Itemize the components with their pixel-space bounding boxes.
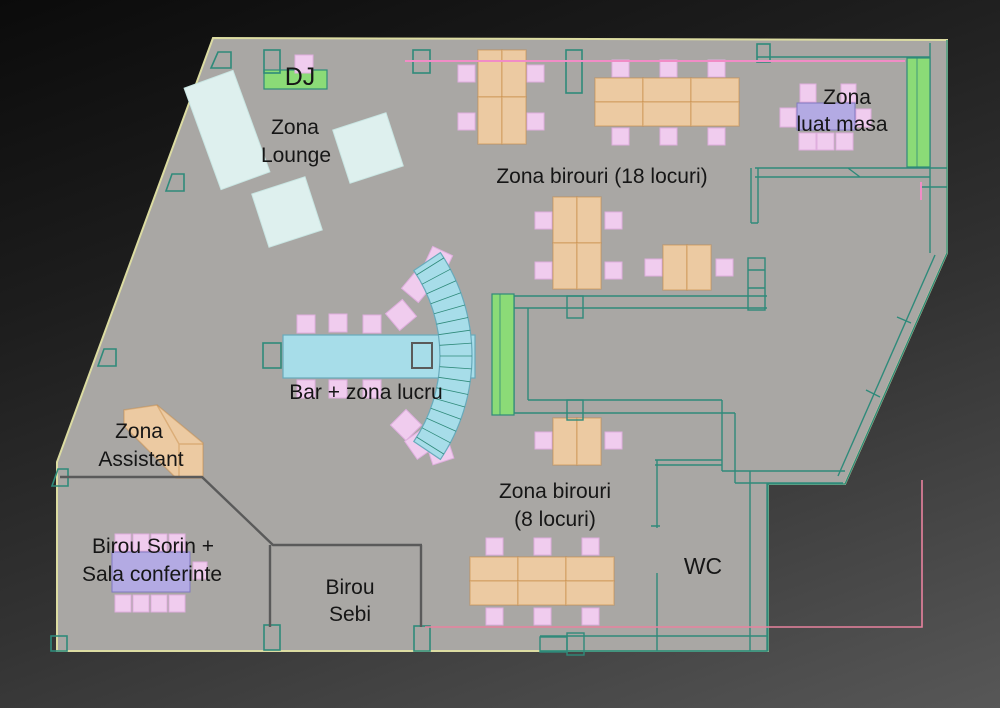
label-sorin-2: Sala conferinte <box>82 563 222 586</box>
label-lounge-2: Lounge <box>261 144 331 167</box>
viewport-background[interactable]: DJ Zona Lounge Zona birouri (18 locuri) … <box>0 0 1000 708</box>
label-sebi-1: Birou <box>325 576 374 599</box>
window-strip-right <box>907 58 930 167</box>
label-birouri8-1: Zona birouri <box>499 480 611 503</box>
label-assistant-2: Assistant <box>98 448 183 471</box>
label-luat-masa-2: luat masa <box>796 113 887 136</box>
label-sebi-2: Sebi <box>329 603 371 626</box>
label-luat-masa-1: Zona <box>823 86 871 109</box>
window-strip-core <box>492 294 514 415</box>
label-wc: WC <box>684 553 722 579</box>
desk-cluster-b <box>595 60 739 145</box>
label-assistant-1: Zona <box>115 420 163 443</box>
label-birouri18: Zona birouri (18 locuri) <box>496 165 707 188</box>
floorplan-canvas[interactable]: DJ Zona Lounge Zona birouri (18 locuri) … <box>0 0 1000 708</box>
desk-cluster-f <box>470 538 614 625</box>
label-sorin-1: Birou Sorin + <box>92 535 214 558</box>
label-birouri8-2: (8 locuri) <box>514 508 596 531</box>
label-lounge-1: Zona <box>271 116 319 139</box>
label-bar: Bar + zona lucru <box>289 381 443 404</box>
label-dj: DJ <box>285 63 316 91</box>
